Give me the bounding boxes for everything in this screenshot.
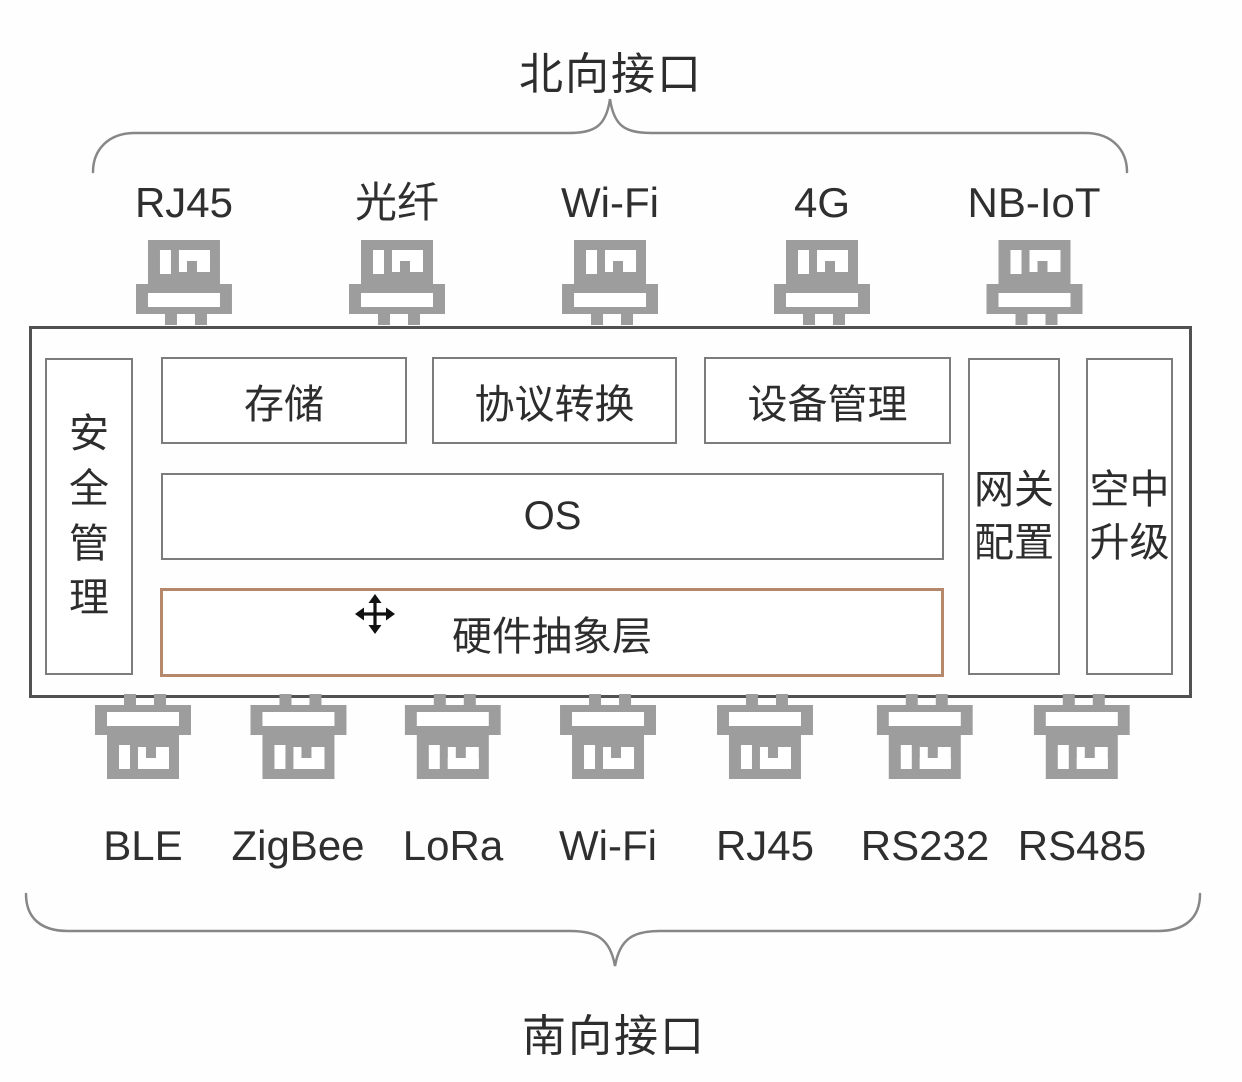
- module-label: 硬件抽象层: [452, 604, 652, 662]
- south-port-zigbee: ZigBee: [231, 694, 364, 869]
- port-label: RS232: [861, 823, 989, 869]
- north-port-nbiot: NB-IoT: [967, 180, 1100, 325]
- module-label: 设备管理: [748, 372, 908, 430]
- module-security-management: 安全管理: [45, 358, 133, 675]
- north-brace: [93, 99, 1127, 172]
- module-label: 存储: [244, 372, 324, 430]
- module-storage: 存储: [161, 357, 407, 444]
- module-hardware-abstraction-layer: 硬件抽象层: [160, 588, 944, 677]
- north-port-fiber: 光纤: [349, 180, 445, 325]
- south-port-rs485: RS485: [1018, 694, 1146, 869]
- module-ota-upgrade: 空中升级: [1086, 358, 1173, 675]
- north-interface-label: 北向接口: [519, 38, 703, 102]
- port-label: 4G: [794, 180, 850, 226]
- south-interface-label: 南向接口: [522, 1000, 706, 1064]
- south-brace: [26, 894, 1200, 966]
- port-connector-icon: [717, 694, 813, 779]
- port-label: BLE: [103, 823, 182, 869]
- port-connector-icon: [250, 694, 346, 779]
- port-label: Wi-Fi: [559, 823, 657, 869]
- port-label: RJ45: [716, 823, 814, 869]
- module-label: 协议转换: [475, 372, 635, 430]
- port-connector-icon: [405, 694, 501, 779]
- south-port-lora: LoRa: [403, 694, 503, 869]
- port-connector-icon: [986, 240, 1082, 325]
- module-label: 网关配置: [970, 464, 1058, 570]
- port-label: RJ45: [135, 180, 233, 226]
- north-port-4g: 4G: [774, 180, 870, 325]
- south-port-rj45: RJ45: [716, 694, 814, 869]
- port-connector-icon: [136, 240, 232, 325]
- south-port-wifi: Wi-Fi: [559, 694, 657, 869]
- port-connector-icon: [774, 240, 870, 325]
- north-port-wifi: Wi-Fi: [561, 180, 659, 325]
- module-label: 安全管理: [64, 407, 114, 626]
- module-device-management: 设备管理: [704, 357, 951, 444]
- gateway-architecture-diagram: 北向接口 南向接口 RJ45 光纤 Wi-Fi 4G NB-IoT 安全管理 存…: [0, 0, 1242, 1082]
- port-connector-icon: [562, 240, 658, 325]
- port-connector-icon: [877, 694, 973, 779]
- module-protocol-conversion: 协议转换: [432, 357, 677, 444]
- south-port-rs232: RS232: [861, 694, 989, 869]
- port-connector-icon: [349, 240, 445, 325]
- module-os: OS: [161, 473, 944, 560]
- port-connector-icon: [1034, 694, 1130, 779]
- port-label: NB-IoT: [967, 180, 1100, 226]
- port-connector-icon: [560, 694, 656, 779]
- module-gateway-config: 网关配置: [968, 358, 1060, 675]
- module-label: 空中升级: [1088, 464, 1171, 570]
- port-label: RS485: [1018, 823, 1146, 869]
- module-label: OS: [524, 494, 582, 539]
- south-port-ble: BLE: [95, 694, 191, 869]
- port-label: 光纤: [355, 180, 439, 226]
- port-label: ZigBee: [231, 823, 364, 869]
- north-port-rj45: RJ45: [135, 180, 233, 325]
- port-label: LoRa: [403, 823, 503, 869]
- port-connector-icon: [95, 694, 191, 779]
- port-label: Wi-Fi: [561, 180, 659, 226]
